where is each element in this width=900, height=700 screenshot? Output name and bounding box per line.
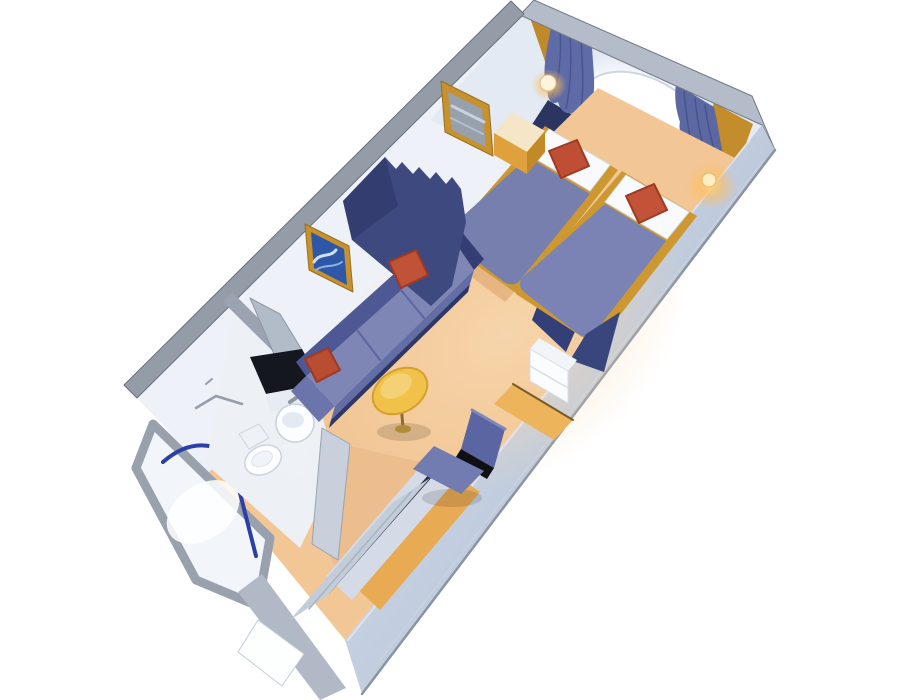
- sconce-right-lamp: [702, 173, 716, 187]
- stateroom-floorplan-page: [0, 0, 900, 700]
- table-base: [395, 425, 411, 433]
- sink-pedestal: [281, 438, 307, 474]
- stateroom-3d-rendering: [0, 0, 900, 700]
- sconce-left-lamp: [540, 75, 556, 91]
- sink-basin: [282, 412, 304, 428]
- chair-shadow: [422, 489, 482, 507]
